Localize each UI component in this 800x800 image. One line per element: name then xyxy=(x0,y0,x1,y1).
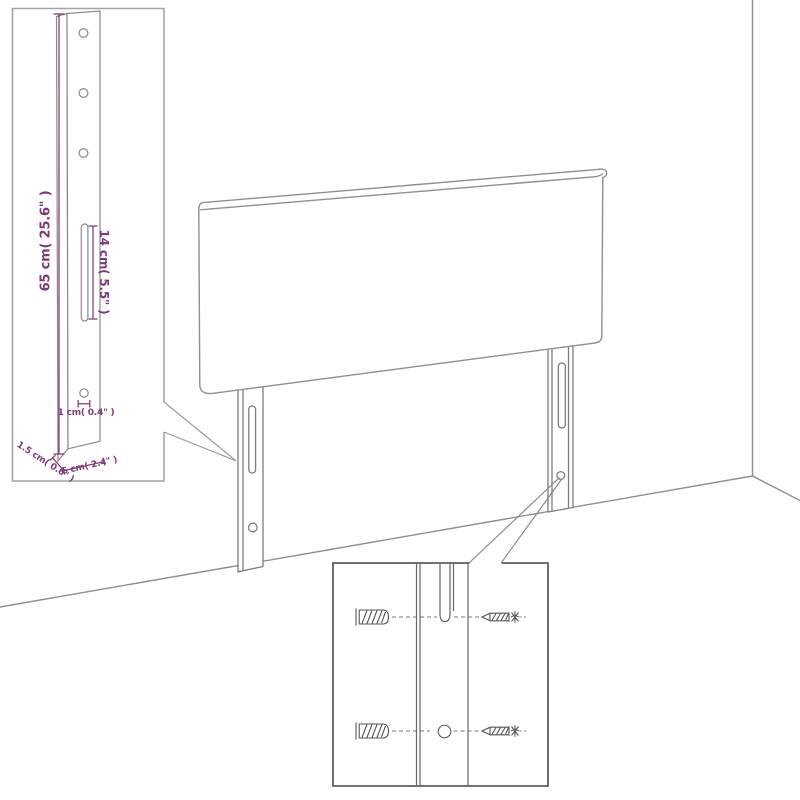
inset-leg-slot xyxy=(81,224,88,321)
left-leg xyxy=(238,385,263,572)
headboard-panel xyxy=(199,169,607,393)
diagram-canvas: 65 cm( 25.6" ) 14 cm( 5.5" ) 1 cm( 0.4" … xyxy=(0,0,800,800)
hole-dimension-label: 1 cm( 0.4" ) xyxy=(58,408,115,418)
slot-dimension-label: 14 cm( 5.5" ) xyxy=(97,230,111,315)
headboard-outline xyxy=(199,169,607,393)
inset-leg-hole-2 xyxy=(79,89,88,98)
inset-leg-hole-1 xyxy=(79,29,88,38)
dimension-callout-lines xyxy=(164,402,236,461)
closeup-hole xyxy=(438,725,451,738)
mounting-inset xyxy=(333,478,562,787)
left-leg-slot xyxy=(249,406,256,473)
floor-line-right xyxy=(753,476,800,501)
inset-leg-bottom-hole xyxy=(80,389,88,397)
height-dimension-label: 65 cm( 25.6" ) xyxy=(39,191,54,292)
inset-leg-side-face xyxy=(57,14,69,461)
right-leg xyxy=(548,344,573,513)
left-leg-hole xyxy=(249,523,258,532)
product-diagram: 65 cm( 25.6" ) 14 cm( 5.5" ) 1 cm( 0.4" … xyxy=(0,0,800,800)
right-leg-slot xyxy=(558,363,565,428)
inset-leg-hole-3 xyxy=(79,149,88,158)
